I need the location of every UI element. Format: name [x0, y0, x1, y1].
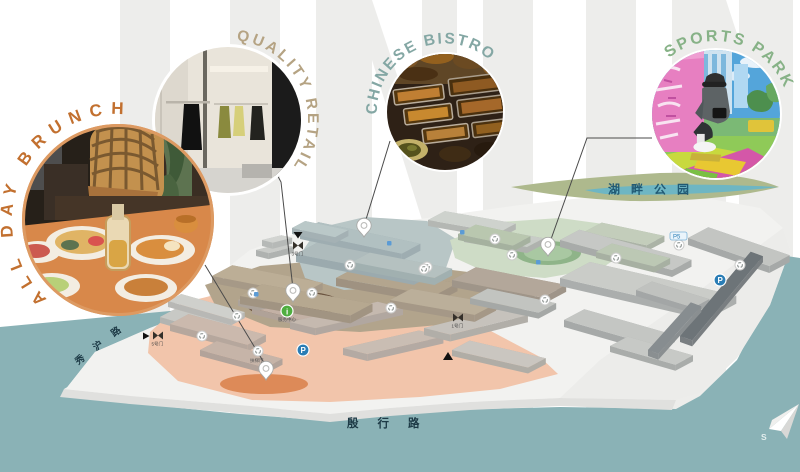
- svg-text:3号门: 3号门: [292, 251, 304, 258]
- svg-text:i: i: [286, 308, 288, 317]
- svg-text:P: P: [718, 276, 724, 285]
- svg-text:湖畔公园: 湖畔公园: [608, 182, 700, 197]
- svg-text:1号门: 1号门: [452, 323, 464, 330]
- svg-text:P5: P5: [673, 235, 681, 241]
- svg-text:服务中心: 服务中心: [278, 316, 296, 323]
- svg-text:S: S: [761, 432, 767, 442]
- svg-text:5号门: 5号门: [152, 341, 164, 348]
- svg-text:P: P: [301, 346, 307, 355]
- svg-text:殷行路: 殷行路: [347, 416, 439, 430]
- svg-text:扶梯厅: 扶梯厅: [250, 357, 264, 364]
